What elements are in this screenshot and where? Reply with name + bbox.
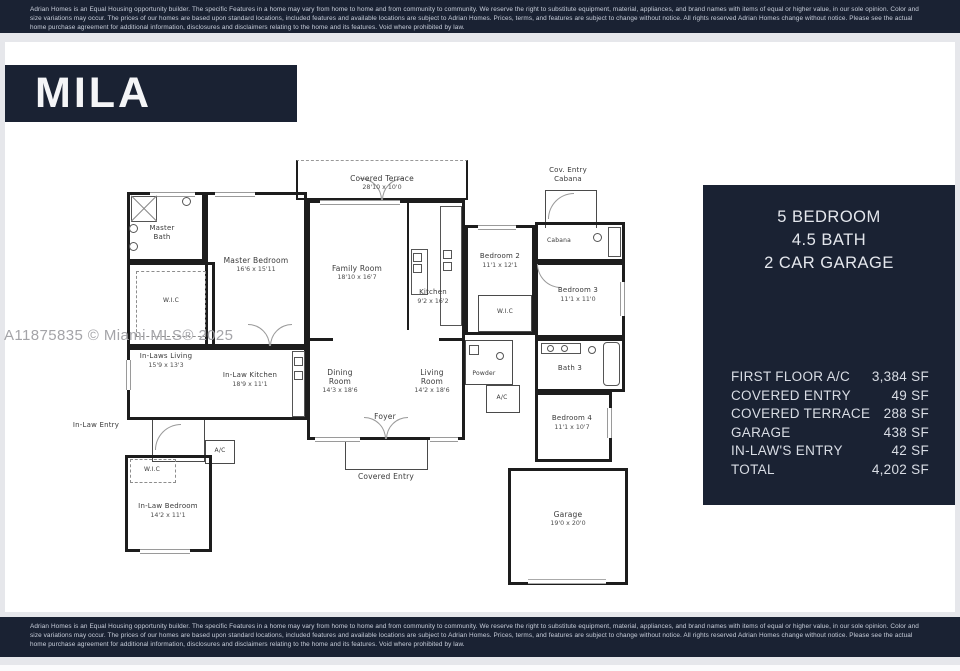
sink-fixture [129,224,138,233]
vanity-fixture [608,227,621,257]
label-bedroom-3: Bedroom 311'1 x 11'0 [558,286,598,304]
window-segment [430,437,458,442]
toilet-fixture [496,352,504,360]
toilet-fixture [588,346,596,354]
garage-door [528,579,606,584]
tub-fixture [603,342,620,386]
window-segment [478,225,516,230]
sink-fixture [547,345,554,352]
mls-watermark: A11875835 © Miami MLS® 2025 [4,327,233,344]
appliance-fixture [443,250,452,259]
label-garage: Garage19'0 x 20'0 [550,510,585,528]
label-ac: A/C [497,393,508,402]
label-in-law-kitchen: In-Law Kitchen18'9 x 11'1 [223,371,277,389]
window-segment [140,549,190,554]
label-foyer: Foyer [374,412,396,421]
appliance-fixture [413,253,422,262]
label-bedroom-2-wic: W.I.C [497,307,513,316]
label-family-room: Family Room18'10 x 16'7 [332,264,382,282]
label-in-laws-living: In-Laws Living15'9 x 13'3 [140,352,192,370]
label-covered-entry: Covered Entry [358,472,414,481]
window-segment [320,200,400,205]
label-in-law-entry: In-Law Entry [73,421,119,430]
sink-fixture [561,345,568,352]
next-page-edge [0,665,960,671]
label-bath-3: Bath 3 [558,364,582,373]
label-master-bedroom: Master Bedroom16'6 x 15'11 [224,256,289,274]
label-powder: Powder [472,369,495,378]
label-in-law-bedroom: In-Law Bedroom14'2 x 11'1 [138,502,198,520]
label-in-law-wic: W.I.C [144,465,160,474]
disclaimer-text: Adrian Homes is an Equal Housing opportu… [30,622,930,649]
appliance-fixture [294,371,303,380]
screen: Adrian Homes is an Equal Housing opportu… [0,0,960,671]
appliance-fixture [294,357,303,366]
toilet-fixture [593,233,602,242]
window-segment [315,437,360,442]
label-kitchen: Kitchen9'2 x 16'2 [417,288,448,306]
sink-fixture [469,345,479,355]
label-dining-room: Dining Room14'3 x 18'6 [321,368,359,395]
label-bedroom-4: Bedroom 411'1 x 10'7 [552,414,592,432]
window-segment [215,192,255,197]
label-master-wic: W.I.C [163,296,179,305]
label-covered-terrace: Covered Terrace28'10 x 10'0 [350,174,414,192]
wall-stub [439,338,465,341]
label-bedroom-2: Bedroom 211'1 x 12'1 [480,252,520,270]
appliance-fixture [443,262,452,271]
wall-stub [307,338,333,341]
room-covered-entry-porch [345,440,428,470]
wall-kitchen-partition [407,200,409,330]
label-cabana: Cabana [547,236,571,245]
label-master-bath: Master Bath [142,224,182,242]
bottom-disclaimer-bar: Adrian Homes is an Equal Housing opportu… [0,617,960,657]
label-cov-entry-cabana: Cov. EntryCabana [549,166,587,184]
sink-fixture [129,242,138,251]
window-segment [620,282,625,316]
toilet-fixture [182,197,191,206]
window-segment [607,408,612,438]
label-in-law-ac: A/C [215,446,226,455]
window-segment [126,360,131,390]
label-living-room: Living Room14'2 x 18'6 [413,368,451,395]
appliance-fixture [413,264,422,273]
